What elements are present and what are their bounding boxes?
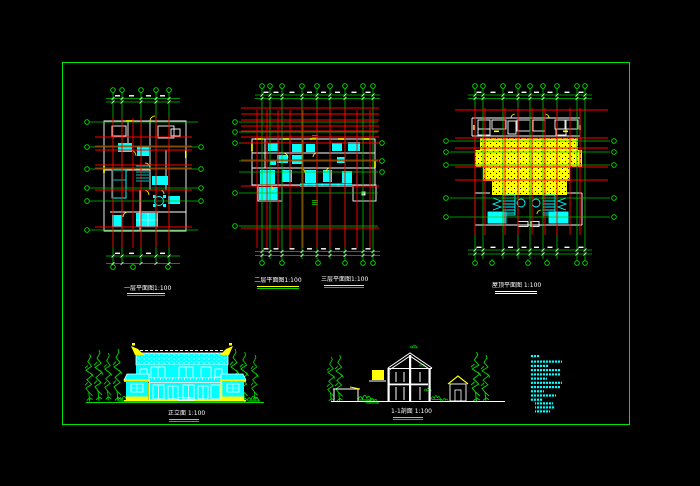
plan2-underline-yellow (257, 286, 299, 287)
elevation-drawing (85, 343, 264, 403)
plan2-title: 二层平面图1:100 (254, 277, 302, 284)
plan2-underline-green (257, 288, 299, 289)
cad-sheet: 一层平面图1:100 二层平面图1:100 三层平面图1:100 屋顶平面图 1… (0, 0, 700, 486)
elevation-underline-cyan (169, 419, 199, 420)
plan1-grid (85, 88, 204, 270)
section-title: 1-1剖面 1:100 (391, 408, 425, 415)
plan3-title: 屋顶平面图 1:100 (492, 282, 540, 289)
elevation-title: 正立面 1:100 (168, 410, 202, 417)
plan1-underline-yellow (127, 293, 165, 294)
elevation-underline-green (169, 421, 199, 422)
notes-block (530, 355, 562, 413)
plan2b-underline-green (324, 287, 364, 288)
plan2b-title: 三层平面图1:100 (321, 276, 367, 283)
section-drawing (327, 345, 505, 403)
plan2b-underline-yellow (324, 285, 364, 286)
plan3-roof-hatch (475, 138, 582, 195)
section-underline-cyan (393, 417, 423, 418)
plan3-stairs-furniture (488, 195, 568, 223)
plan1-title: 一层平面图1:100 (124, 285, 168, 292)
plan3-underline-2 (495, 293, 537, 294)
plan3-underline-1 (495, 291, 537, 292)
section-underline-green (393, 419, 423, 420)
cad-drawing (0, 0, 700, 486)
plan3-grid (444, 84, 617, 266)
plan1-underline-green (127, 295, 165, 296)
